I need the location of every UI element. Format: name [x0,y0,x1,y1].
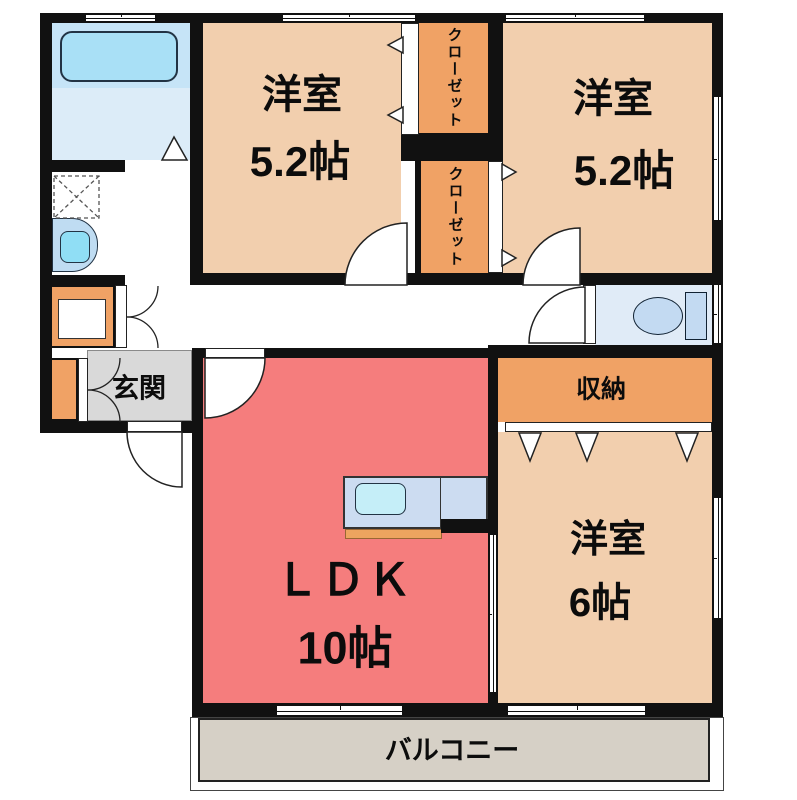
ldk-size: 10帖 [297,626,392,671]
wall-closet-bottom-left [415,160,421,273]
bedroom-right-size: 5.2帖 [574,150,674,192]
shoe-cabinet-panel [58,299,106,339]
shoe-cabinet-door-arc-upper [127,286,158,317]
entrance-label: 玄関 [112,376,166,403]
closet-top-label: クローゼット [447,27,462,129]
closet-bottom-label: クローゼット [448,166,463,268]
kitchen-sink [355,483,406,515]
wall-closet-right [488,23,503,163]
toilet-tank [685,292,707,340]
shoe-cabinet-door-arc-lower [127,317,158,348]
wall-outer-left [40,13,52,432]
washing-machine-space [54,176,99,218]
wall-entrance-bottom-a [40,421,128,433]
balcony-label: バルコニー [385,738,519,765]
window-bedroom-south-balcony [508,704,645,717]
closet-bottom-door [488,161,503,273]
wall-ldk-bedroom-a [488,358,498,535]
vanity-basin [60,231,90,263]
wall-bedroom-right-bottom-b [580,273,713,285]
storage-label: 収納 [576,378,626,403]
wall-bath-bedroom [190,13,203,285]
wall-closet-divider [401,133,490,161]
door-leaf-bedroom-left [345,273,407,285]
door-leaf-toilet [583,285,596,344]
ldk-name: ＬＤＫ [275,559,413,603]
wall-bath-divider [40,160,125,172]
toilet-bowl [633,297,683,335]
bedroom-right-name: 洋室 [573,79,653,119]
wall-ldk-bedroom-b [488,692,498,703]
wall-washroom-bottom [40,275,125,285]
kitchen-stove-block [441,519,488,533]
sliding-door-ldk-bedroom [488,535,498,692]
door-leaf-front [127,421,182,432]
window-bathroom-top [86,13,155,23]
wall-entrance-bottom-b [182,421,203,433]
shoe-cabinet-door [115,285,127,348]
wall-bedroom-right-bottom-a [503,273,523,285]
wall-bedroom-left-bottom-b [407,273,503,285]
bedroom-south-floor [498,432,712,703]
bedroom-south-name: 洋室 [570,521,646,559]
door-leaf-ldk [205,348,265,358]
bathroom-floor [52,88,190,160]
bedroom-south-size: 6帖 [569,583,631,623]
kitchen-base-cabinet [345,529,442,539]
bedroom-left-size: 5.2帖 [250,141,350,183]
door-leaf-bedroom-right [523,273,580,285]
window-toilet-east [712,285,723,343]
door-arc-front-entry [127,432,182,487]
window-bedroom-right-top [506,13,644,23]
entry-cabinet [50,358,78,421]
bedroom-left-name: 洋室 [262,75,342,115]
wall-bedroom-left-bottom-a [190,273,345,285]
door-arc-toilet [529,287,585,343]
wall-ldk-left [192,348,203,703]
floor-plan: 洋室 5.2帖 洋室 5.2帖 クローゼット クローゼット 玄関 収納 ＬＤＫ … [0,0,797,800]
wall-storage-top [488,345,723,358]
entry-cabinet-door [78,358,88,422]
closet-top-door [401,23,419,135]
storage-folding-door [505,422,712,432]
bathtub [60,31,178,82]
window-bedroom-south-east [712,498,723,618]
window-ldk-balcony [277,704,402,717]
window-bedroom-right-east [712,97,723,220]
window-bedroom-left-top [283,13,415,23]
wall-ldk-top-b [265,348,498,358]
